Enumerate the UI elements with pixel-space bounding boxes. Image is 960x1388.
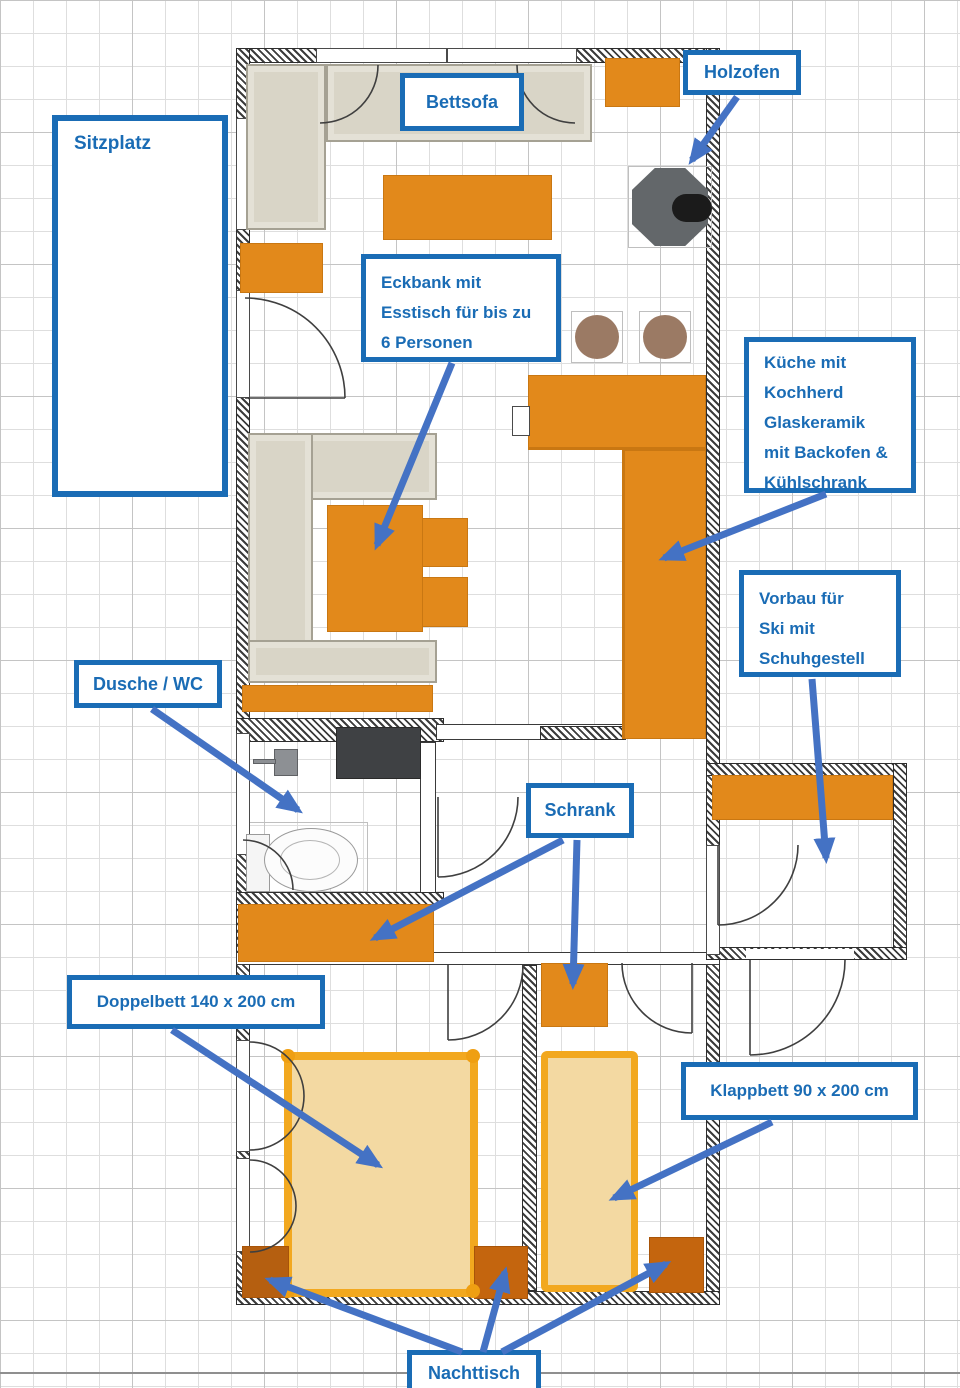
arrow-dusche-wc	[152, 709, 298, 810]
arrow-holzofen	[692, 97, 737, 160]
arrow-nachttisch-1	[270, 1280, 462, 1352]
arrow-schrank-1	[375, 840, 563, 938]
arrow-vorbau	[812, 679, 826, 858]
arrow-nachttisch-2	[483, 1272, 505, 1352]
arrow-schrank-2	[573, 840, 577, 984]
floor-plan-canvas: Sitzplatz Bettsofa Holzofen Eckbank mit …	[0, 0, 960, 1388]
arrow-doppelbett	[172, 1030, 378, 1165]
arrow-klappbett	[614, 1122, 772, 1198]
arrow-eckbank	[377, 363, 452, 545]
annotation-arrows-layer	[0, 0, 960, 1388]
arrow-nachttisch-3	[502, 1264, 666, 1352]
arrow-kueche	[664, 494, 826, 558]
